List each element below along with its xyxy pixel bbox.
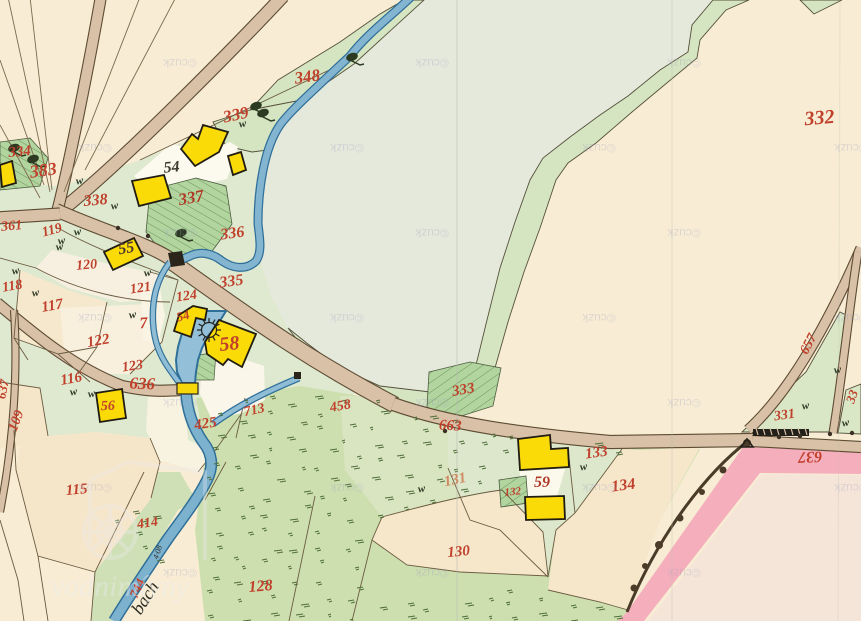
svg-text:©cuzk: ©cuzk xyxy=(581,311,616,325)
svg-text:336: 336 xyxy=(218,223,245,243)
svg-text:663: 663 xyxy=(439,417,463,434)
svg-text:636: 636 xyxy=(129,374,156,394)
svg-text:vodnimíyny: vodnimíyny xyxy=(51,570,190,603)
svg-text:©cuzk: ©cuzk xyxy=(581,481,616,495)
svg-text:©cuzk: ©cuzk xyxy=(162,226,197,240)
svg-text:414: 414 xyxy=(135,515,159,533)
svg-text:55: 55 xyxy=(117,239,136,259)
svg-text:©cuzk: ©cuzk xyxy=(77,141,112,155)
svg-text:©cuzk: ©cuzk xyxy=(666,566,701,580)
svg-text:©cuzk: ©cuzk xyxy=(666,226,701,240)
svg-text:128: 128 xyxy=(248,577,273,596)
svg-text:©cuzk: ©cuzk xyxy=(833,311,861,325)
svg-text:©cuzk: ©cuzk xyxy=(162,56,197,70)
svg-text:54: 54 xyxy=(163,158,180,176)
svg-text:©cuzk: ©cuzk xyxy=(162,396,197,410)
svg-text:637: 637 xyxy=(797,448,823,466)
svg-text:331: 331 xyxy=(772,407,796,425)
svg-text:332: 332 xyxy=(803,106,836,131)
svg-text:©cuzk: ©cuzk xyxy=(77,481,112,495)
svg-text:334: 334 xyxy=(7,143,32,161)
svg-text:132: 132 xyxy=(504,485,522,498)
svg-text:©cuzk: ©cuzk xyxy=(833,141,861,155)
svg-text:©cuzk: ©cuzk xyxy=(414,56,449,70)
svg-text:©cuzk: ©cuzk xyxy=(666,56,701,70)
svg-text:©cuzk: ©cuzk xyxy=(833,481,861,495)
svg-text:©cuzk: ©cuzk xyxy=(329,481,364,495)
svg-text:©cuzk: ©cuzk xyxy=(414,226,449,240)
svg-text:338: 338 xyxy=(82,191,108,210)
svg-text:©cuzk: ©cuzk xyxy=(666,396,701,410)
svg-text:©cuzk: ©cuzk xyxy=(414,396,449,410)
svg-text:©cuzk: ©cuzk xyxy=(414,566,449,580)
svg-text:©cuzk: ©cuzk xyxy=(581,141,616,155)
svg-text:335: 335 xyxy=(217,271,244,291)
svg-text:©cuzk: ©cuzk xyxy=(77,311,112,325)
svg-text:130: 130 xyxy=(447,543,471,561)
svg-text:58: 58 xyxy=(218,332,240,356)
svg-text:121: 121 xyxy=(129,280,152,298)
svg-text:361: 361 xyxy=(0,218,23,235)
svg-text:425: 425 xyxy=(192,414,218,433)
svg-text:56: 56 xyxy=(101,399,116,414)
svg-text:©cuzk: ©cuzk xyxy=(329,141,364,155)
svg-text:133: 133 xyxy=(584,443,609,462)
svg-text:383: 383 xyxy=(27,158,58,182)
svg-text:124: 124 xyxy=(175,288,198,306)
svg-text:120: 120 xyxy=(76,257,98,274)
svg-text:©cuzk: ©cuzk xyxy=(329,311,364,325)
svg-text:348: 348 xyxy=(292,65,321,88)
svg-text:59: 59 xyxy=(534,474,550,491)
